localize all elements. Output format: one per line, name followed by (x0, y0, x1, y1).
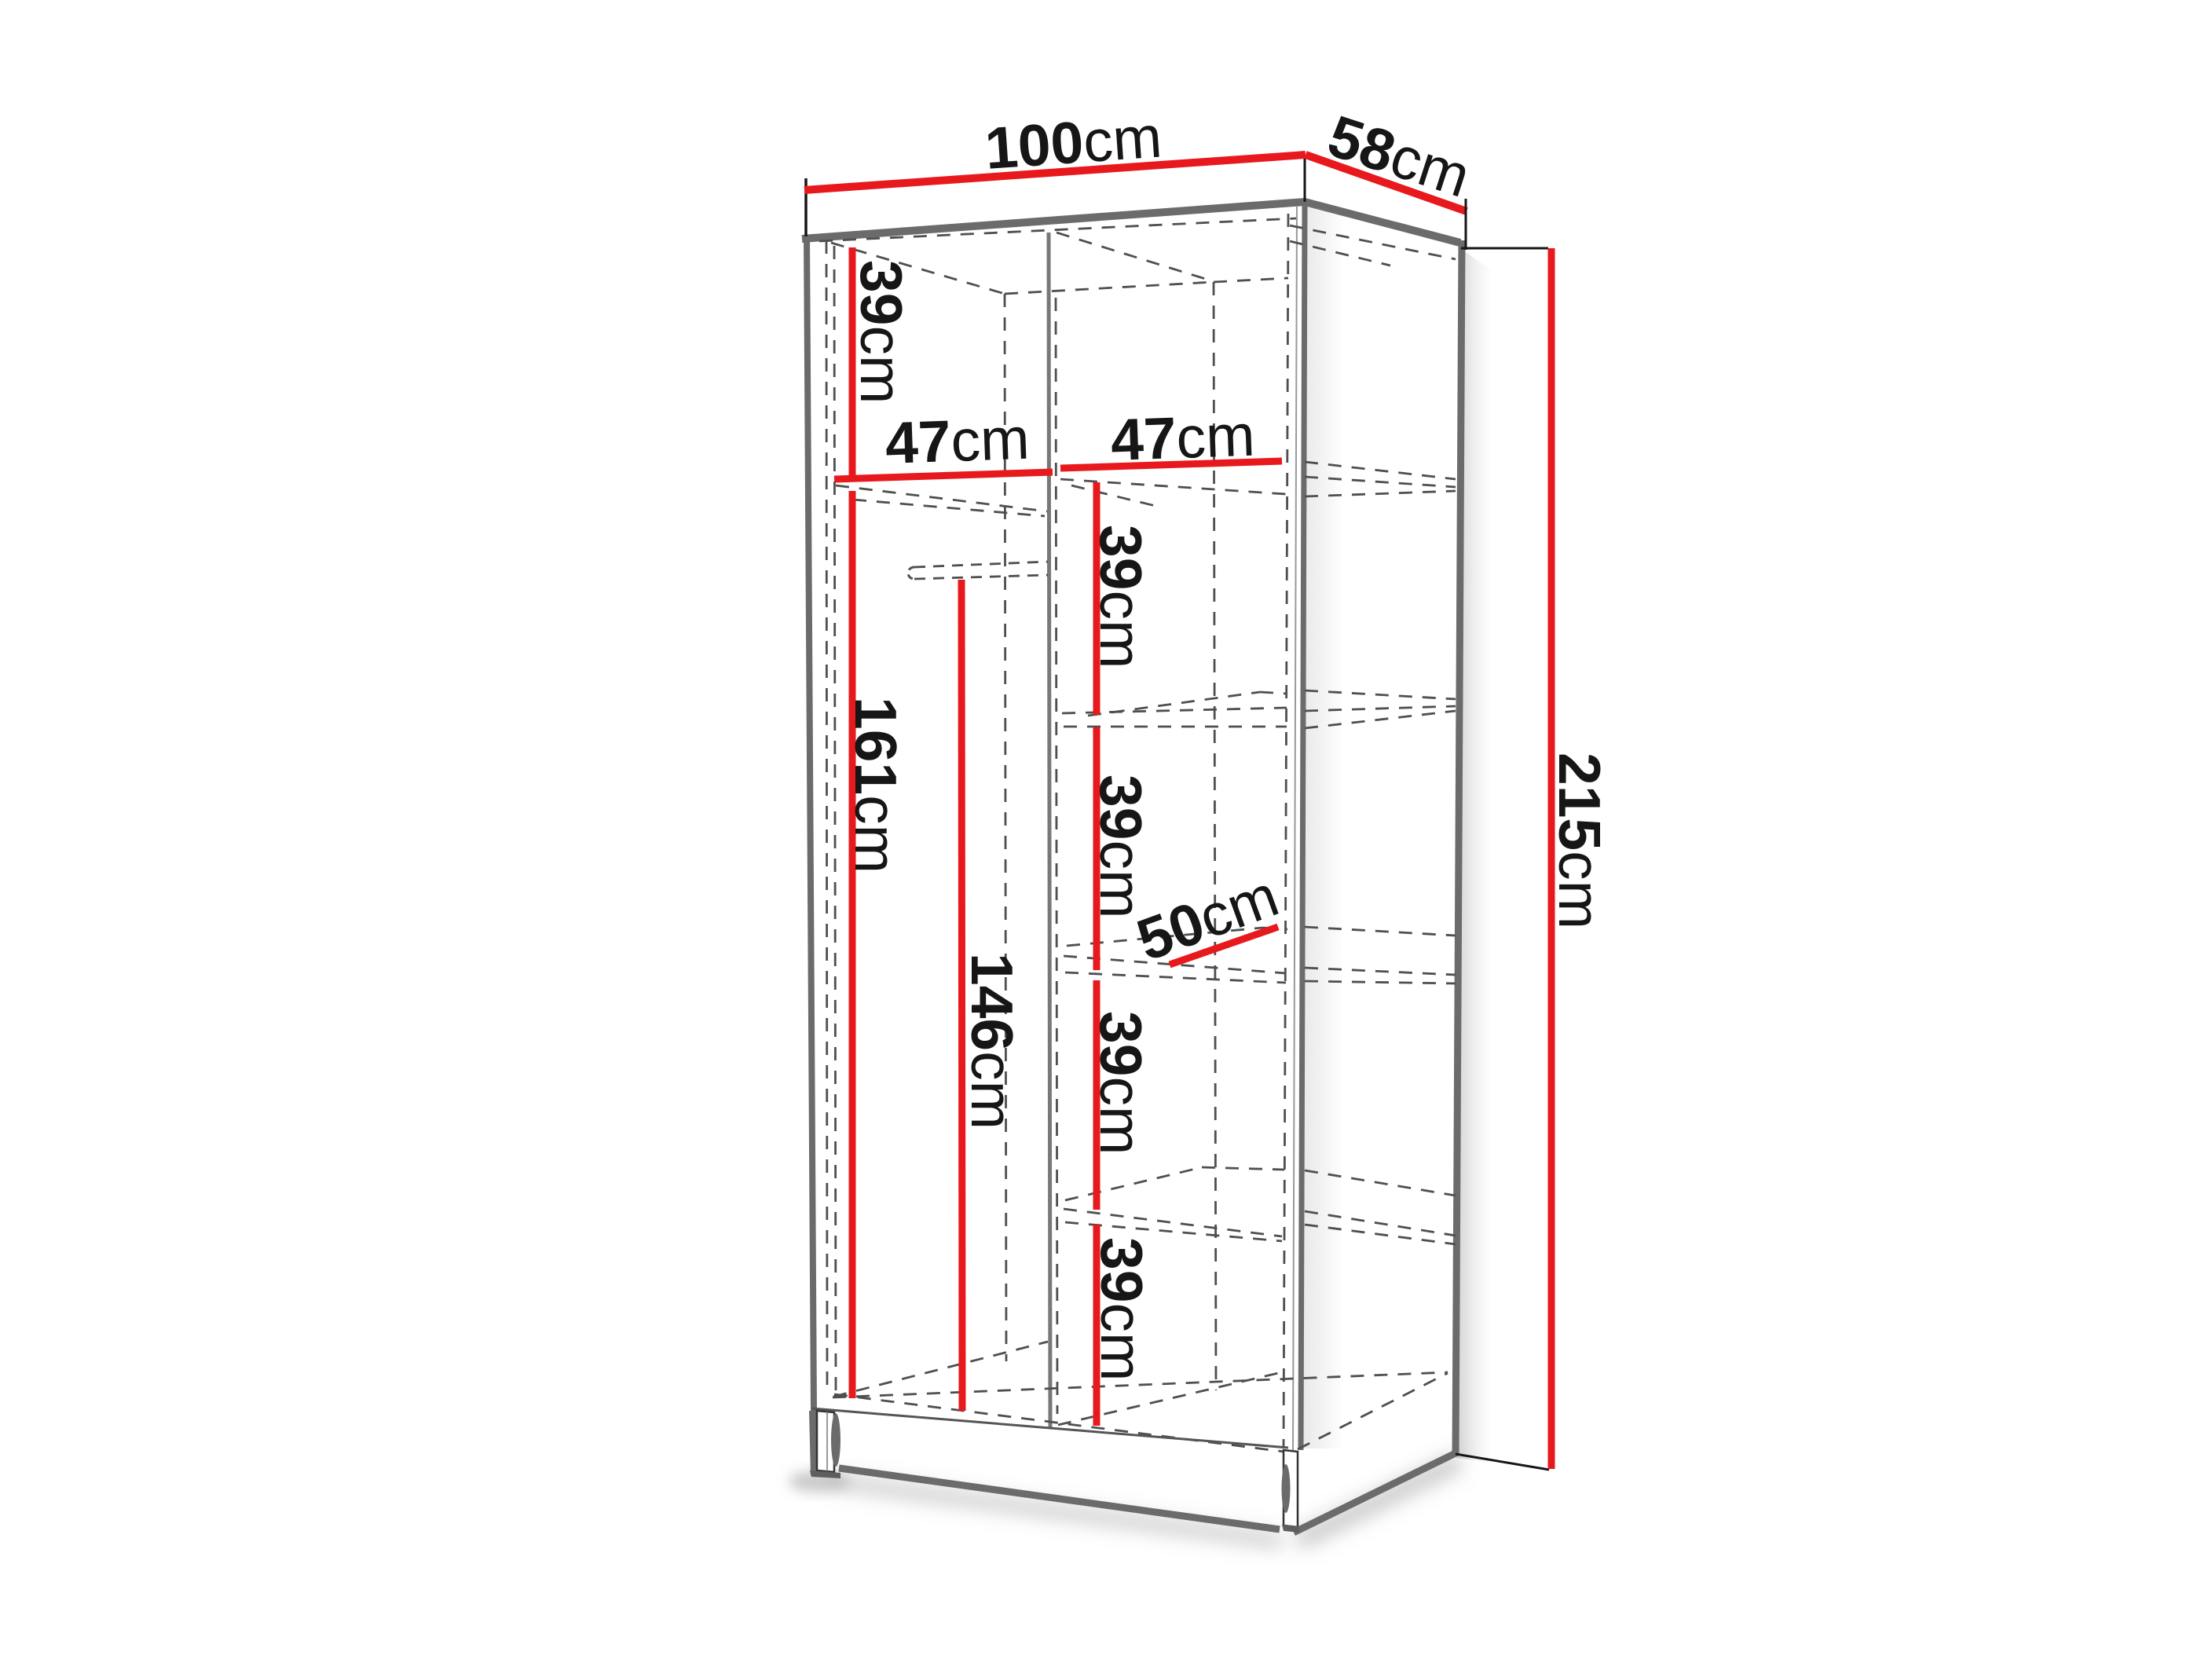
svg-text:215cm: 215cm (1547, 753, 1613, 929)
svg-text:39cm: 39cm (1088, 775, 1154, 918)
svg-text:39cm: 39cm (1088, 1011, 1154, 1155)
svg-text:39cm: 39cm (1089, 1237, 1155, 1381)
svg-text:146cm: 146cm (959, 953, 1025, 1130)
svg-text:39cm: 39cm (848, 260, 914, 404)
svg-text:47cm: 47cm (1110, 402, 1256, 473)
svg-text:39cm: 39cm (1088, 525, 1154, 668)
svg-text:100cm: 100cm (983, 103, 1163, 181)
svg-text:47cm: 47cm (884, 405, 1031, 476)
svg-text:161cm: 161cm (843, 697, 909, 873)
